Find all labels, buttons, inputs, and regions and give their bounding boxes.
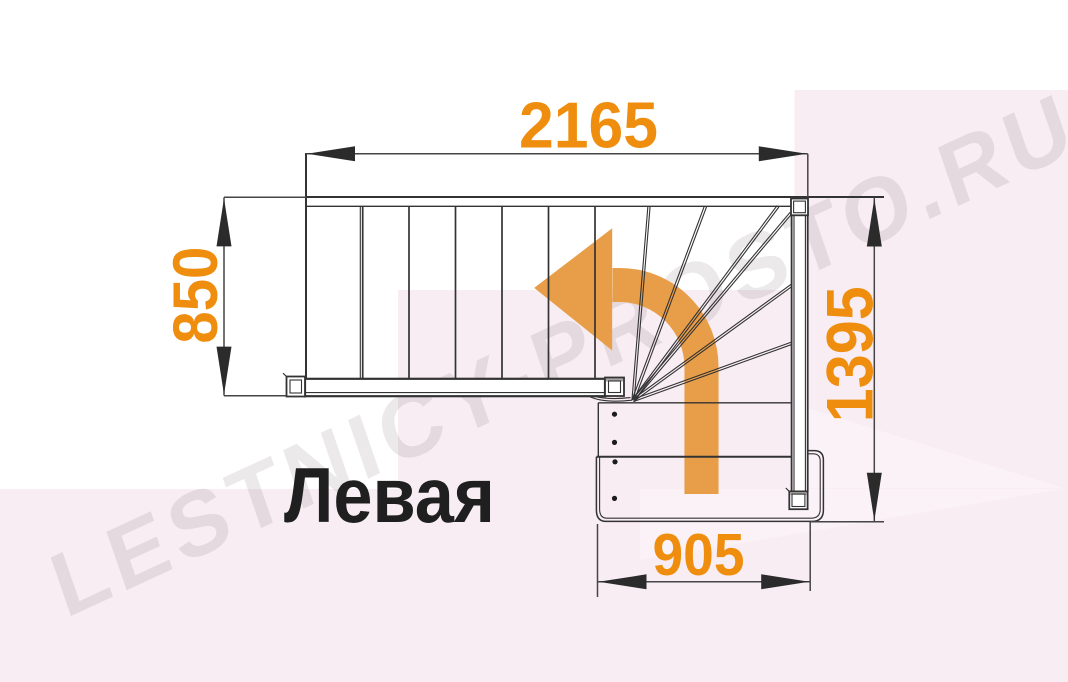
svg-text:905: 905: [653, 522, 745, 588]
svg-text:850: 850: [161, 247, 231, 344]
svg-text:1395: 1395: [812, 286, 886, 422]
svg-text:Левая: Левая: [284, 451, 495, 539]
svg-text:2165: 2165: [519, 89, 658, 162]
